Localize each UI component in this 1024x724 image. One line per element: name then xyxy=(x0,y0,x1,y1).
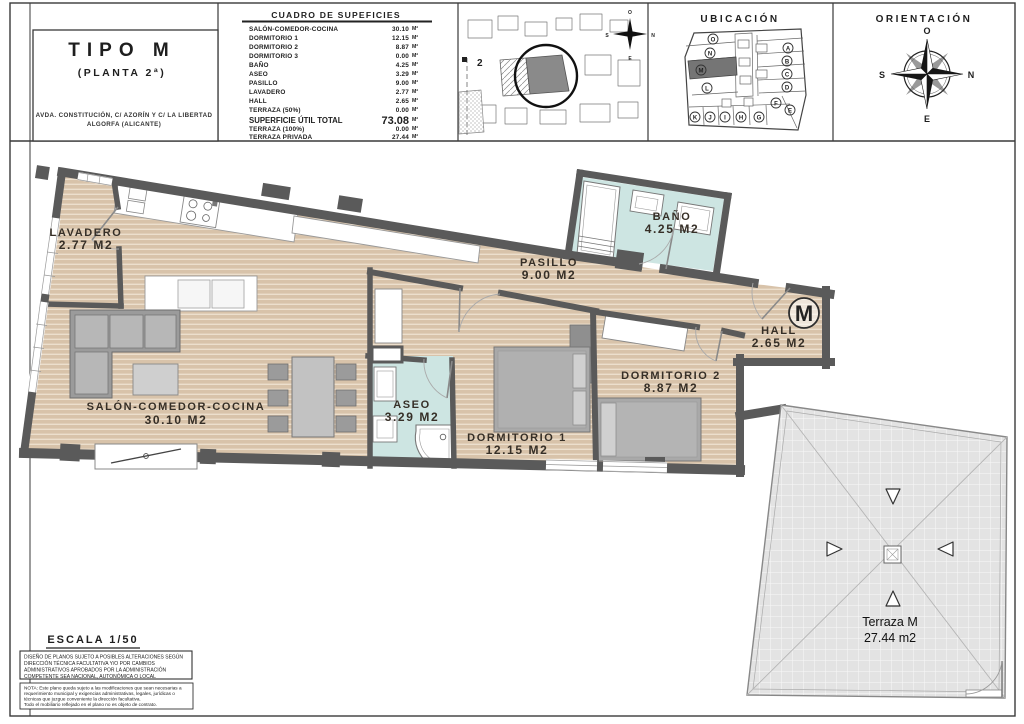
svg-text:E: E xyxy=(788,109,792,115)
row-value: 12.15 xyxy=(392,35,409,42)
compass-rose-icon: O S N E xyxy=(879,26,974,124)
svg-text:3.29 M2: 3.29 M2 xyxy=(385,410,440,424)
svg-text:DIRECCIÓN TÉCNICA FACULTATIVA: DIRECCIÓN TÉCNICA FACULTATIVA Y/O POR CA… xyxy=(24,660,156,667)
address-line-2: ALGORFA (ALICANTE) xyxy=(87,121,161,128)
footer: ESCALA 1/50 DISEÑO DE PLANOS SUJETO A PO… xyxy=(20,634,193,709)
svg-text:O: O xyxy=(628,10,632,16)
svg-text:S: S xyxy=(605,33,609,39)
terrace-area: 27.44 m2 xyxy=(864,631,916,645)
dorm1-wardrobe xyxy=(375,289,402,343)
svg-text:M: M xyxy=(795,301,813,326)
site-stipple-area xyxy=(459,90,484,134)
svg-text:N: N xyxy=(968,70,975,80)
svg-text:M: M xyxy=(699,69,704,75)
svg-text:requerimiento municipal y exig: requerimiento municipal y exigencias adm… xyxy=(24,691,175,696)
svg-text:2.65 M2: 2.65 M2 xyxy=(752,336,807,350)
row-unit: M² xyxy=(412,80,418,86)
ubicacion-unit-m-highlight xyxy=(688,57,737,79)
disclaimer-box: DISEÑO DE PLANOS SUJETO A POSIBLES ALTER… xyxy=(20,651,192,680)
svg-text:S: S xyxy=(879,70,885,80)
row-value: 4.25 xyxy=(396,62,409,69)
row-value: 9.00 xyxy=(396,80,409,87)
terraza100-value: 0.00 xyxy=(396,126,409,133)
row-label: DORMITORIO 3 xyxy=(249,53,298,60)
svg-text:H: H xyxy=(739,116,743,122)
row-label: TERRAZA (50%) xyxy=(249,107,301,114)
row-unit: M² xyxy=(412,107,418,113)
dorm1-bed xyxy=(494,347,590,432)
terraza-privada-unit: M² xyxy=(412,134,418,140)
row-unit: M² xyxy=(412,98,418,104)
svg-text:2.77 M2: 2.77 M2 xyxy=(59,238,114,252)
svg-text:NOTA: Este plano queda sujeto: NOTA: Este plano queda sujeto a las modi… xyxy=(24,686,182,691)
svg-text:E: E xyxy=(924,114,930,124)
row-value: 3.29 xyxy=(396,71,409,78)
orientacion-panel: ORIENTACIÓN O S N E xyxy=(876,12,975,124)
surface-table-title: CUADRO DE SUPEFICIES xyxy=(271,10,401,20)
terrace: Terraza M 27.44 m2 xyxy=(747,405,1007,698)
row-unit: M² xyxy=(412,71,418,77)
svg-text:I: I xyxy=(724,116,726,122)
floor-label: (PLANTA 2ª) xyxy=(78,67,167,79)
row-label: BAÑO xyxy=(249,60,269,69)
terraza100-unit: M² xyxy=(412,126,418,132)
row-value: 30.10 xyxy=(392,26,409,33)
row-label: DORMITORIO 1 xyxy=(249,35,298,42)
total-label: SUPERFICIE ÚTIL TOTAL xyxy=(249,116,343,125)
row-unit: M² xyxy=(412,26,418,32)
row-unit: M² xyxy=(412,89,418,95)
row-label: LAVADERO xyxy=(249,89,286,96)
aseo-sink-icon xyxy=(374,367,396,401)
total-unit: M² xyxy=(412,117,418,123)
row-label: DORMITORIO 2 xyxy=(249,44,298,51)
terrace-name: Terraza M xyxy=(862,615,918,629)
svg-text:L: L xyxy=(705,87,709,93)
surface-table: CUADRO DE SUPEFICIES SALÓN-COMEDOR-COCIN… xyxy=(242,10,432,141)
svg-text:4.25 M2: 4.25 M2 xyxy=(645,222,700,236)
site-plot-highlight xyxy=(526,55,569,94)
svg-text:G: G xyxy=(757,116,762,122)
window-dorm2 xyxy=(603,462,667,473)
svg-text:O: O xyxy=(711,38,716,44)
floor-plan: LAVADERO 2.77 M2 SALÓN-COMEDOR-COCINA 30… xyxy=(24,165,831,473)
floor-plan-sheet: TIPO M (PLANTA 2ª) AVDA. CONSTITUCIÓN, C… xyxy=(0,0,1024,724)
row-unit: M² xyxy=(412,53,418,59)
svg-text:J: J xyxy=(708,116,711,122)
svg-text:ADMINISTRATIVOS APROBADOS POR: ADMINISTRATIVOS APROBADOS POR LA ADMINIS… xyxy=(24,667,167,674)
scale-label: ESCALA 1/50 xyxy=(47,634,138,646)
svg-text:DISEÑO DE PLANOS SUJETO A POSI: DISEÑO DE PLANOS SUJETO A POSIBLES ALTER… xyxy=(24,654,183,661)
duct-niche xyxy=(372,347,402,362)
svg-text:C: C xyxy=(785,73,790,79)
row-label: ASEO xyxy=(249,71,268,78)
type-label: TIPO M xyxy=(68,40,175,61)
terraza100-label: TERRAZA (100%) xyxy=(249,126,304,133)
title-block: TIPO M (PLANTA 2ª) AVDA. CONSTITUCIÓN, C… xyxy=(33,30,218,141)
terrace-floor xyxy=(747,405,1007,698)
unit-marker: M xyxy=(789,298,819,328)
surface-table-total: SUPERFICIE ÚTIL TOTAL 73.08 M² TERRAZA (… xyxy=(249,115,418,141)
site-block-label: 2 xyxy=(477,58,483,69)
svg-text:K: K xyxy=(693,116,698,122)
window-dorm1 xyxy=(546,460,597,471)
svg-text:8.87 M2: 8.87 M2 xyxy=(644,381,699,395)
row-label: SALÓN-COMEDOR-COCINA xyxy=(249,24,338,33)
ubicacion-title: UBICACIÓN xyxy=(700,12,779,25)
row-value: 2.77 xyxy=(396,89,409,96)
coffee-table xyxy=(133,364,178,395)
svg-text:A: A xyxy=(786,47,791,53)
sliding-door xyxy=(95,444,197,469)
ubicacion-panel: UBICACIÓN O N M xyxy=(685,12,806,130)
drain-icon xyxy=(884,546,901,563)
terraza-privada-label: TERRAZA PRIVADA xyxy=(249,134,313,141)
row-value: 2.65 xyxy=(396,98,409,105)
svg-text:Todo el mobiliario reflejado e: Todo el mobiliario reflejado en el plano… xyxy=(24,702,157,707)
svg-text:O: O xyxy=(923,26,930,36)
orientacion-title: ORIENTACIÓN xyxy=(876,12,973,25)
svg-text:técnicas que juzgue convenient: técnicas que juzgue conveniente la direc… xyxy=(24,697,141,702)
site-plan-panel: 2 O S N E xyxy=(459,10,655,136)
room-label-salon: SALÓN-COMEDOR-COCINA xyxy=(87,400,266,413)
svg-text:N: N xyxy=(708,52,712,58)
address-line-1: AVDA. CONSTITUCIÓN, C/ AZORÍN Y C/ LA LI… xyxy=(36,111,213,119)
row-unit: M² xyxy=(412,62,418,68)
row-value: 8.87 xyxy=(396,44,409,51)
dorm2-bed xyxy=(597,398,701,461)
row-label: HALL xyxy=(249,98,267,105)
svg-text:9.00 M2: 9.00 M2 xyxy=(522,268,577,282)
dining-set xyxy=(268,357,356,437)
svg-text:12.15 M2: 12.15 M2 xyxy=(486,443,549,457)
svg-text:B: B xyxy=(785,60,790,66)
bathtub-icon xyxy=(577,181,620,260)
terraza-privada-value: 27.44 xyxy=(392,134,409,141)
surface-table-rows: SALÓN-COMEDOR-COCINA 30.10 M² DORMITORIO… xyxy=(249,24,418,114)
svg-text:N: N xyxy=(651,33,655,39)
row-label: PASILLO xyxy=(249,80,278,87)
svg-text:F: F xyxy=(774,102,778,108)
row-unit: M² xyxy=(412,35,418,41)
row-value: 0.00 xyxy=(396,53,409,60)
svg-text:D: D xyxy=(785,86,790,92)
note-box: NOTA: Este plano queda sujeto a las modi… xyxy=(20,683,193,709)
svg-text:30.10 M2: 30.10 M2 xyxy=(145,413,208,427)
svg-text:COMPETENTE SEA NACIONAL, AUTON: COMPETENTE SEA NACIONAL, AUTONÓMICA O LO… xyxy=(24,673,156,680)
row-value: 0.00 xyxy=(396,107,409,114)
row-unit: M² xyxy=(412,44,418,50)
